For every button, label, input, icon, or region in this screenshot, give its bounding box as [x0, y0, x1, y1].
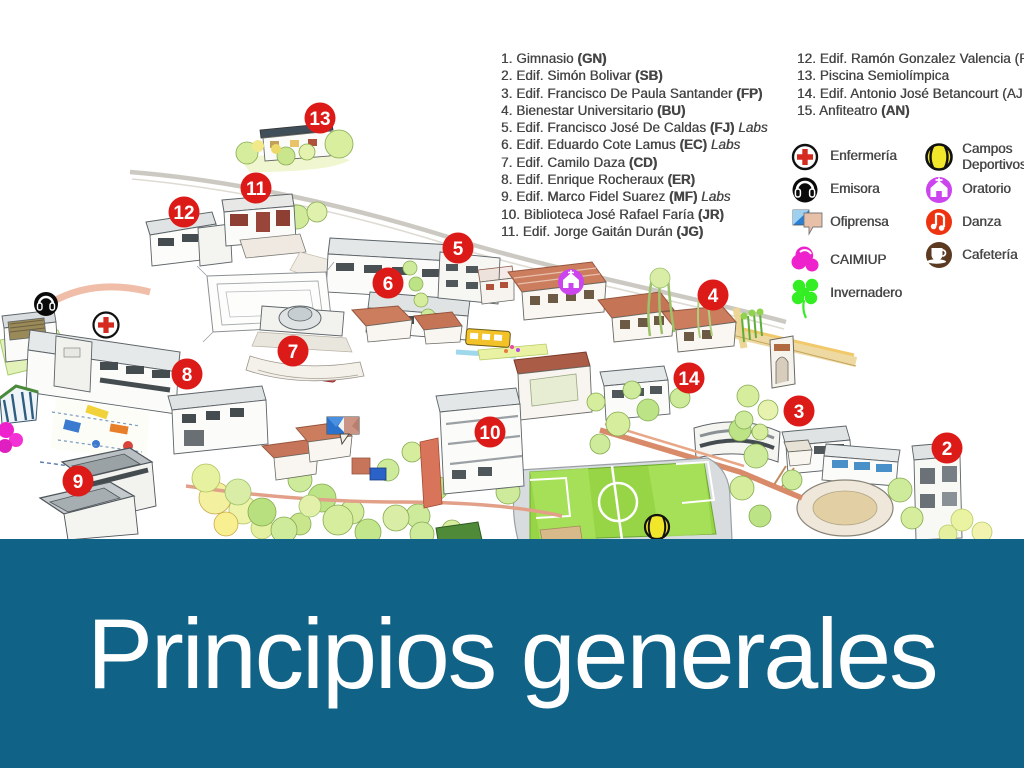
- svg-text:7: 7: [288, 342, 299, 363]
- svg-text:5: 5: [453, 239, 464, 260]
- svg-text:4: 4: [708, 286, 719, 307]
- svg-text:13: 13: [309, 109, 330, 130]
- svg-text:10: 10: [479, 423, 500, 444]
- svg-text:8: 8: [182, 365, 193, 386]
- svg-text:2: 2: [942, 439, 953, 460]
- svg-text:12: 12: [173, 203, 194, 224]
- svg-text:6: 6: [383, 274, 394, 295]
- svg-text:11: 11: [246, 179, 267, 200]
- svg-text:14: 14: [678, 369, 700, 390]
- svg-text:9: 9: [73, 472, 84, 493]
- svg-text:3: 3: [794, 402, 805, 423]
